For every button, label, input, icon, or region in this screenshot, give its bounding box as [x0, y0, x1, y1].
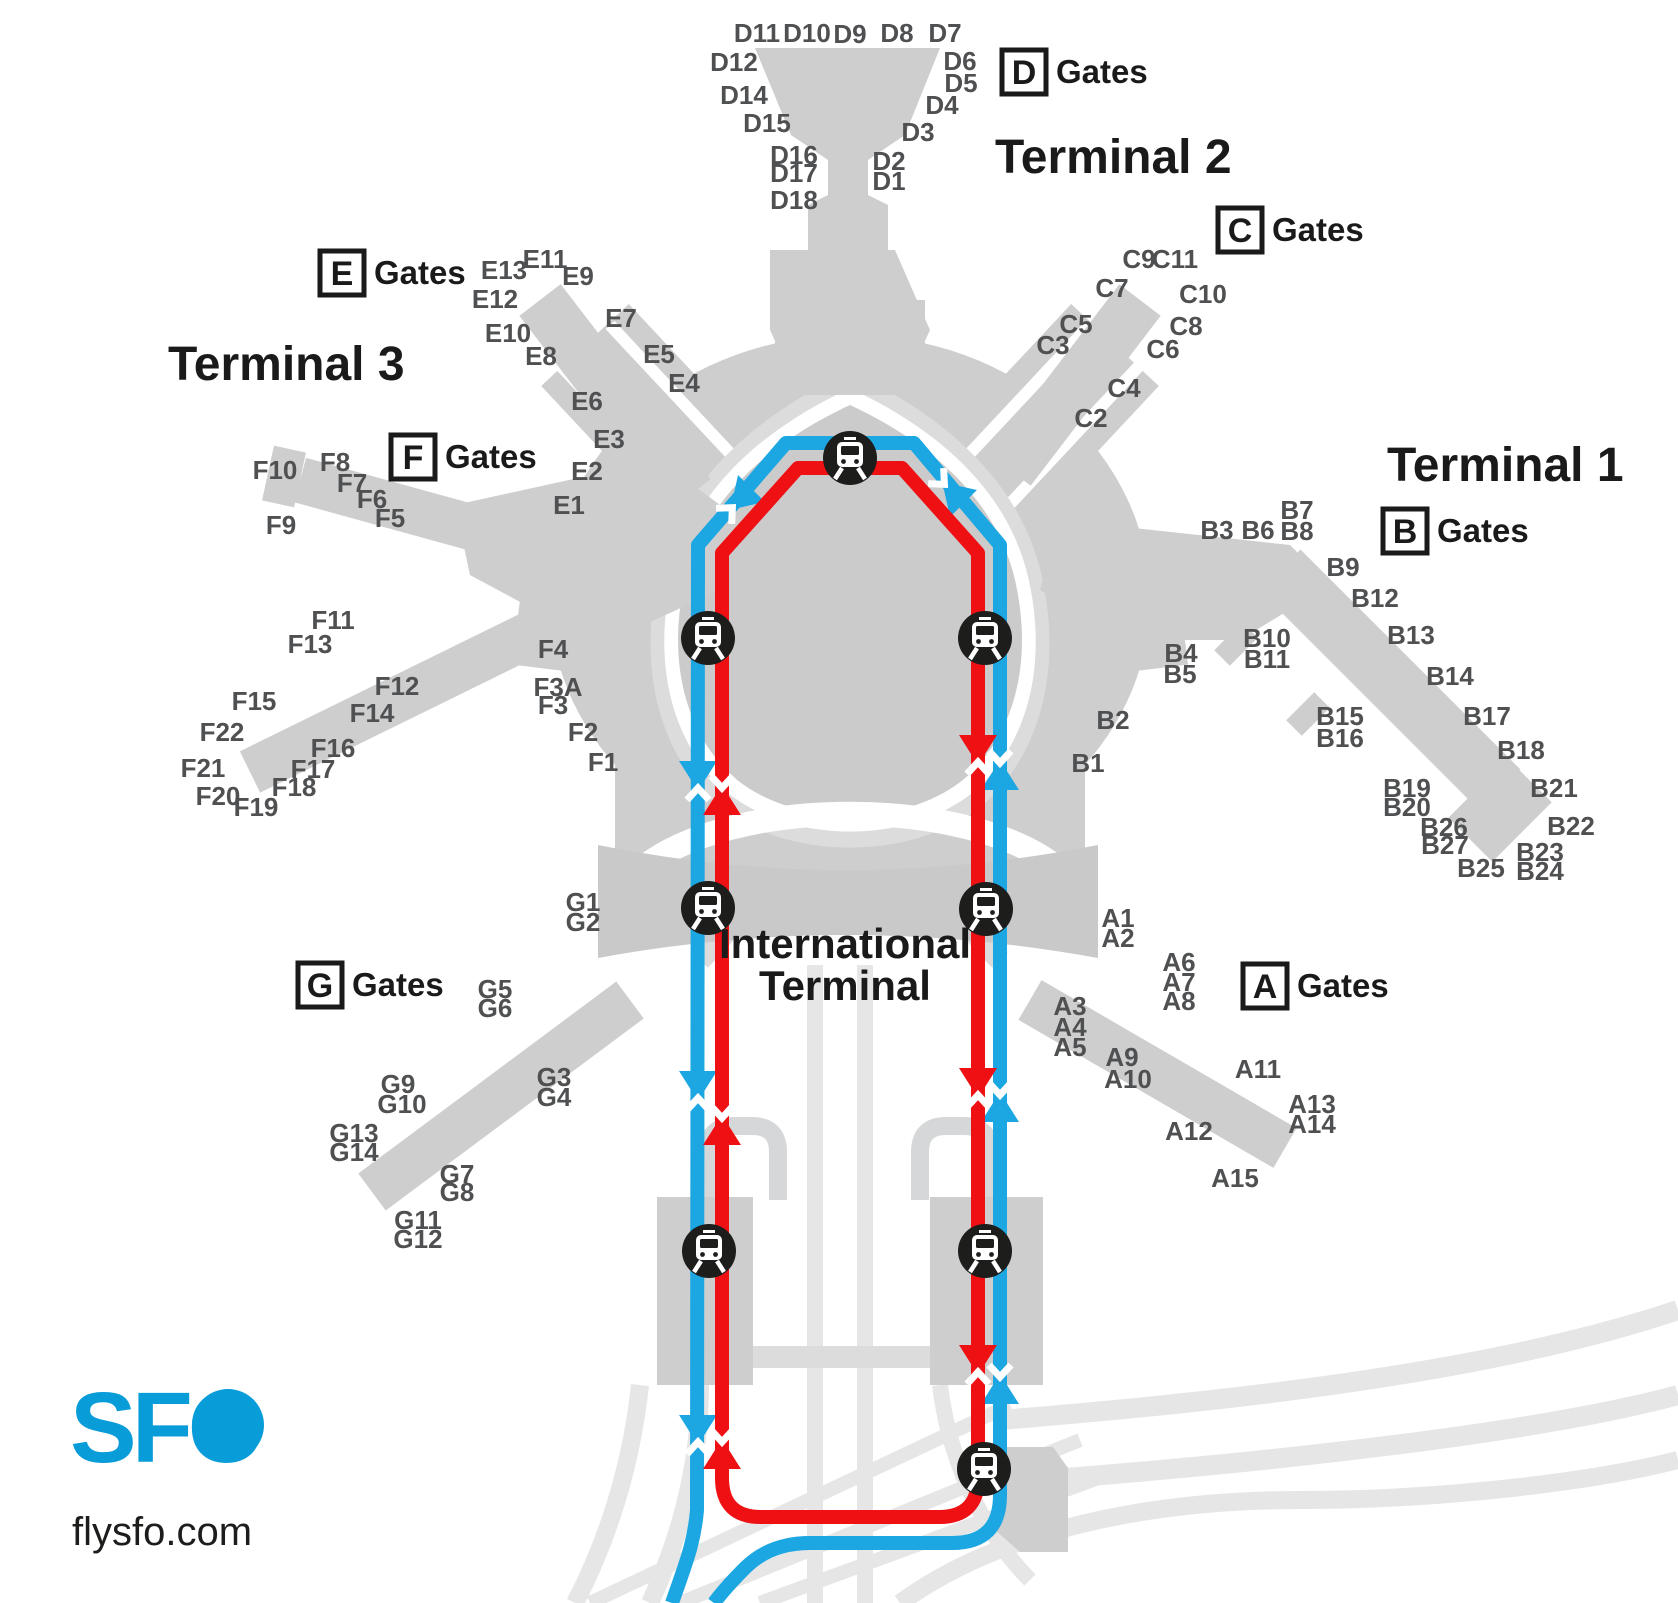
gate-label-b21: B21: [1530, 773, 1578, 803]
gate-label-f1: F1: [588, 747, 618, 777]
gate-label-c7: C7: [1095, 273, 1128, 303]
gate-label-b18: B18: [1497, 735, 1545, 765]
gate-label-g8: G8: [440, 1177, 475, 1207]
international-terminal-title-line1: International: [719, 920, 971, 967]
gate-label-b11: B11: [1244, 644, 1290, 674]
gate-label-b20: B20: [1383, 792, 1431, 822]
airport-map-canvas: Terminal 2 Terminal 3 Terminal 1 Interna…: [0, 0, 1678, 1603]
gate-label-d12: D12: [710, 47, 758, 77]
gate-label-b8: B8: [1280, 516, 1313, 546]
gate-label-g10: G10: [377, 1089, 426, 1119]
gate-label-f21: F21: [181, 753, 226, 783]
gate-label-b3: B3: [1200, 515, 1233, 545]
gate-label-c10: C10: [1179, 279, 1227, 309]
gate-label-f15: F15: [232, 686, 277, 716]
svg-text:F: F: [403, 439, 424, 477]
gate-label-d9: D9: [833, 19, 866, 49]
train-station-icon: [957, 1442, 1011, 1496]
gate-label-e4: E4: [668, 368, 700, 398]
gate-label-b24: B24: [1516, 856, 1564, 886]
train-station-icon: [958, 611, 1012, 665]
gate-label-c2: C2: [1074, 403, 1107, 433]
gate-label-e9: E9: [562, 261, 594, 291]
svg-text:D: D: [1012, 54, 1037, 92]
gate-label-e5: E5: [643, 339, 675, 369]
gate-label-a12: A12: [1165, 1116, 1213, 1146]
gate-group-header-g: G Gates: [298, 963, 444, 1007]
gate-label-c4: C4: [1107, 373, 1141, 403]
svg-text:Gates: Gates: [1056, 53, 1148, 90]
svg-text:Gates: Gates: [1272, 211, 1364, 248]
b-pier-tip: [1478, 788, 1522, 832]
gate-label-e8: E8: [525, 341, 557, 371]
gate-label-b6: B6: [1241, 515, 1274, 545]
gate-group-header-d: D Gates: [1002, 50, 1148, 94]
gate-label-c9: C9: [1122, 244, 1155, 274]
gate-label-c6: C6: [1146, 334, 1179, 364]
train-station-icon: [681, 611, 735, 665]
gate-group-header-c: C Gates: [1218, 208, 1364, 252]
gate-label-d17: D17: [770, 158, 818, 188]
gate-label-b27: B27: [1421, 830, 1469, 860]
svg-text:Gates: Gates: [1437, 512, 1529, 549]
sfo-logo-o-disc: [192, 1389, 264, 1461]
gate-label-e2: E2: [571, 456, 603, 486]
gate-label-d11: D11: [734, 18, 780, 48]
international-terminal-title-line2: Terminal: [759, 962, 931, 1009]
gate-label-b17: B17: [1463, 701, 1511, 731]
gate-label-d10: D10: [783, 18, 831, 48]
gate-group-header-f: F Gates: [391, 435, 537, 479]
gate-label-f22: F22: [200, 717, 245, 747]
gate-label-b2: B2: [1096, 705, 1129, 735]
svg-text:Gates: Gates: [374, 254, 466, 291]
gate-label-a10: A10: [1104, 1064, 1152, 1094]
svg-text:A: A: [1253, 968, 1278, 1006]
gate-label-g12: G12: [393, 1224, 442, 1254]
train-station-icon: [958, 1224, 1012, 1278]
terminal-1-title: Terminal 1: [1387, 439, 1624, 492]
gate-label-b12: B12: [1351, 583, 1399, 613]
svg-text:G: G: [307, 967, 333, 1005]
gate-label-f16: F16: [311, 733, 356, 763]
website-link[interactable]: flysfo.com: [72, 1510, 252, 1554]
gate-label-f2: F2: [568, 717, 598, 747]
gate-label-d4: D4: [925, 90, 959, 120]
gate-label-g6: G6: [478, 993, 513, 1023]
sfo-airtrain-map: Terminal 2 Terminal 3 Terminal 1 Interna…: [0, 0, 1678, 1603]
gate-group-header-e: E Gates: [320, 251, 466, 295]
gate-label-b1: B1: [1071, 748, 1104, 778]
gate-label-c3: C3: [1036, 330, 1069, 360]
train-station-icon: [682, 1224, 736, 1278]
gate-label-b9: B9: [1326, 552, 1359, 582]
gate-label-a14: A14: [1288, 1109, 1336, 1139]
gate-label-e1: E1: [553, 490, 585, 520]
gate-label-f12: F12: [375, 671, 420, 701]
gate-label-a8: A8: [1162, 986, 1195, 1016]
gate-label-d3: D3: [901, 117, 934, 147]
gate-label-d15: D15: [743, 108, 791, 138]
gate-label-b16: B16: [1316, 723, 1364, 753]
terminal-2-title: Terminal 2: [995, 131, 1232, 184]
sfo-logo: SFO: [70, 1372, 264, 1484]
gate-label-d7: D7: [928, 18, 961, 48]
train-station-icon: [823, 431, 877, 485]
gate-label-f4: F4: [538, 634, 569, 664]
svg-text:Gates: Gates: [1297, 967, 1389, 1004]
gate-label-f13: F13: [288, 629, 333, 659]
gate-label-b5: B5: [1163, 659, 1196, 689]
gate-label-g14: G14: [329, 1137, 379, 1167]
svg-text:B: B: [1393, 513, 1418, 551]
gate-group-header-a: A Gates: [1243, 964, 1389, 1008]
gate-label-g2: G2: [566, 907, 601, 937]
gate-label-f9: F9: [266, 510, 296, 540]
gate-label-e12: E12: [472, 284, 518, 314]
gate-label-c11: C11: [1152, 244, 1198, 274]
gate-label-b14: B14: [1426, 661, 1474, 691]
gate-group-header-b: B Gates: [1383, 509, 1529, 553]
svg-text:Gates: Gates: [352, 966, 444, 1003]
terminal-2-building: [755, 48, 940, 395]
gate-label-g4: G4: [537, 1082, 572, 1112]
svg-text:Gates: Gates: [445, 438, 537, 475]
gate-label-f5: F5: [375, 503, 405, 533]
gate-label-e13: E13: [481, 255, 527, 285]
gate-label-d1: D1: [872, 166, 905, 196]
gate-label-e7: E7: [605, 303, 637, 333]
svg-text:E: E: [331, 255, 354, 293]
gate-label-f14: F14: [350, 698, 395, 728]
gate-label-f10: F10: [253, 455, 298, 485]
gate-label-d8: D8: [880, 18, 913, 48]
gate-label-f3: F3: [538, 690, 568, 720]
gate-label-e3: E3: [593, 424, 625, 454]
gate-label-e6: E6: [571, 386, 603, 416]
svg-text:C: C: [1228, 212, 1253, 250]
gate-label-b13: B13: [1387, 620, 1435, 650]
terminal-3-title: Terminal 3: [168, 338, 405, 391]
gate-label-a15: A15: [1211, 1163, 1259, 1193]
gate-label-a5: A5: [1053, 1032, 1086, 1062]
gate-label-e11: E11: [523, 244, 568, 274]
gate-label-d18: D18: [770, 185, 818, 215]
gate-label-d14: D14: [720, 80, 768, 110]
gate-label-a11: A11: [1235, 1054, 1281, 1084]
gate-label-a2: A2: [1101, 923, 1134, 953]
